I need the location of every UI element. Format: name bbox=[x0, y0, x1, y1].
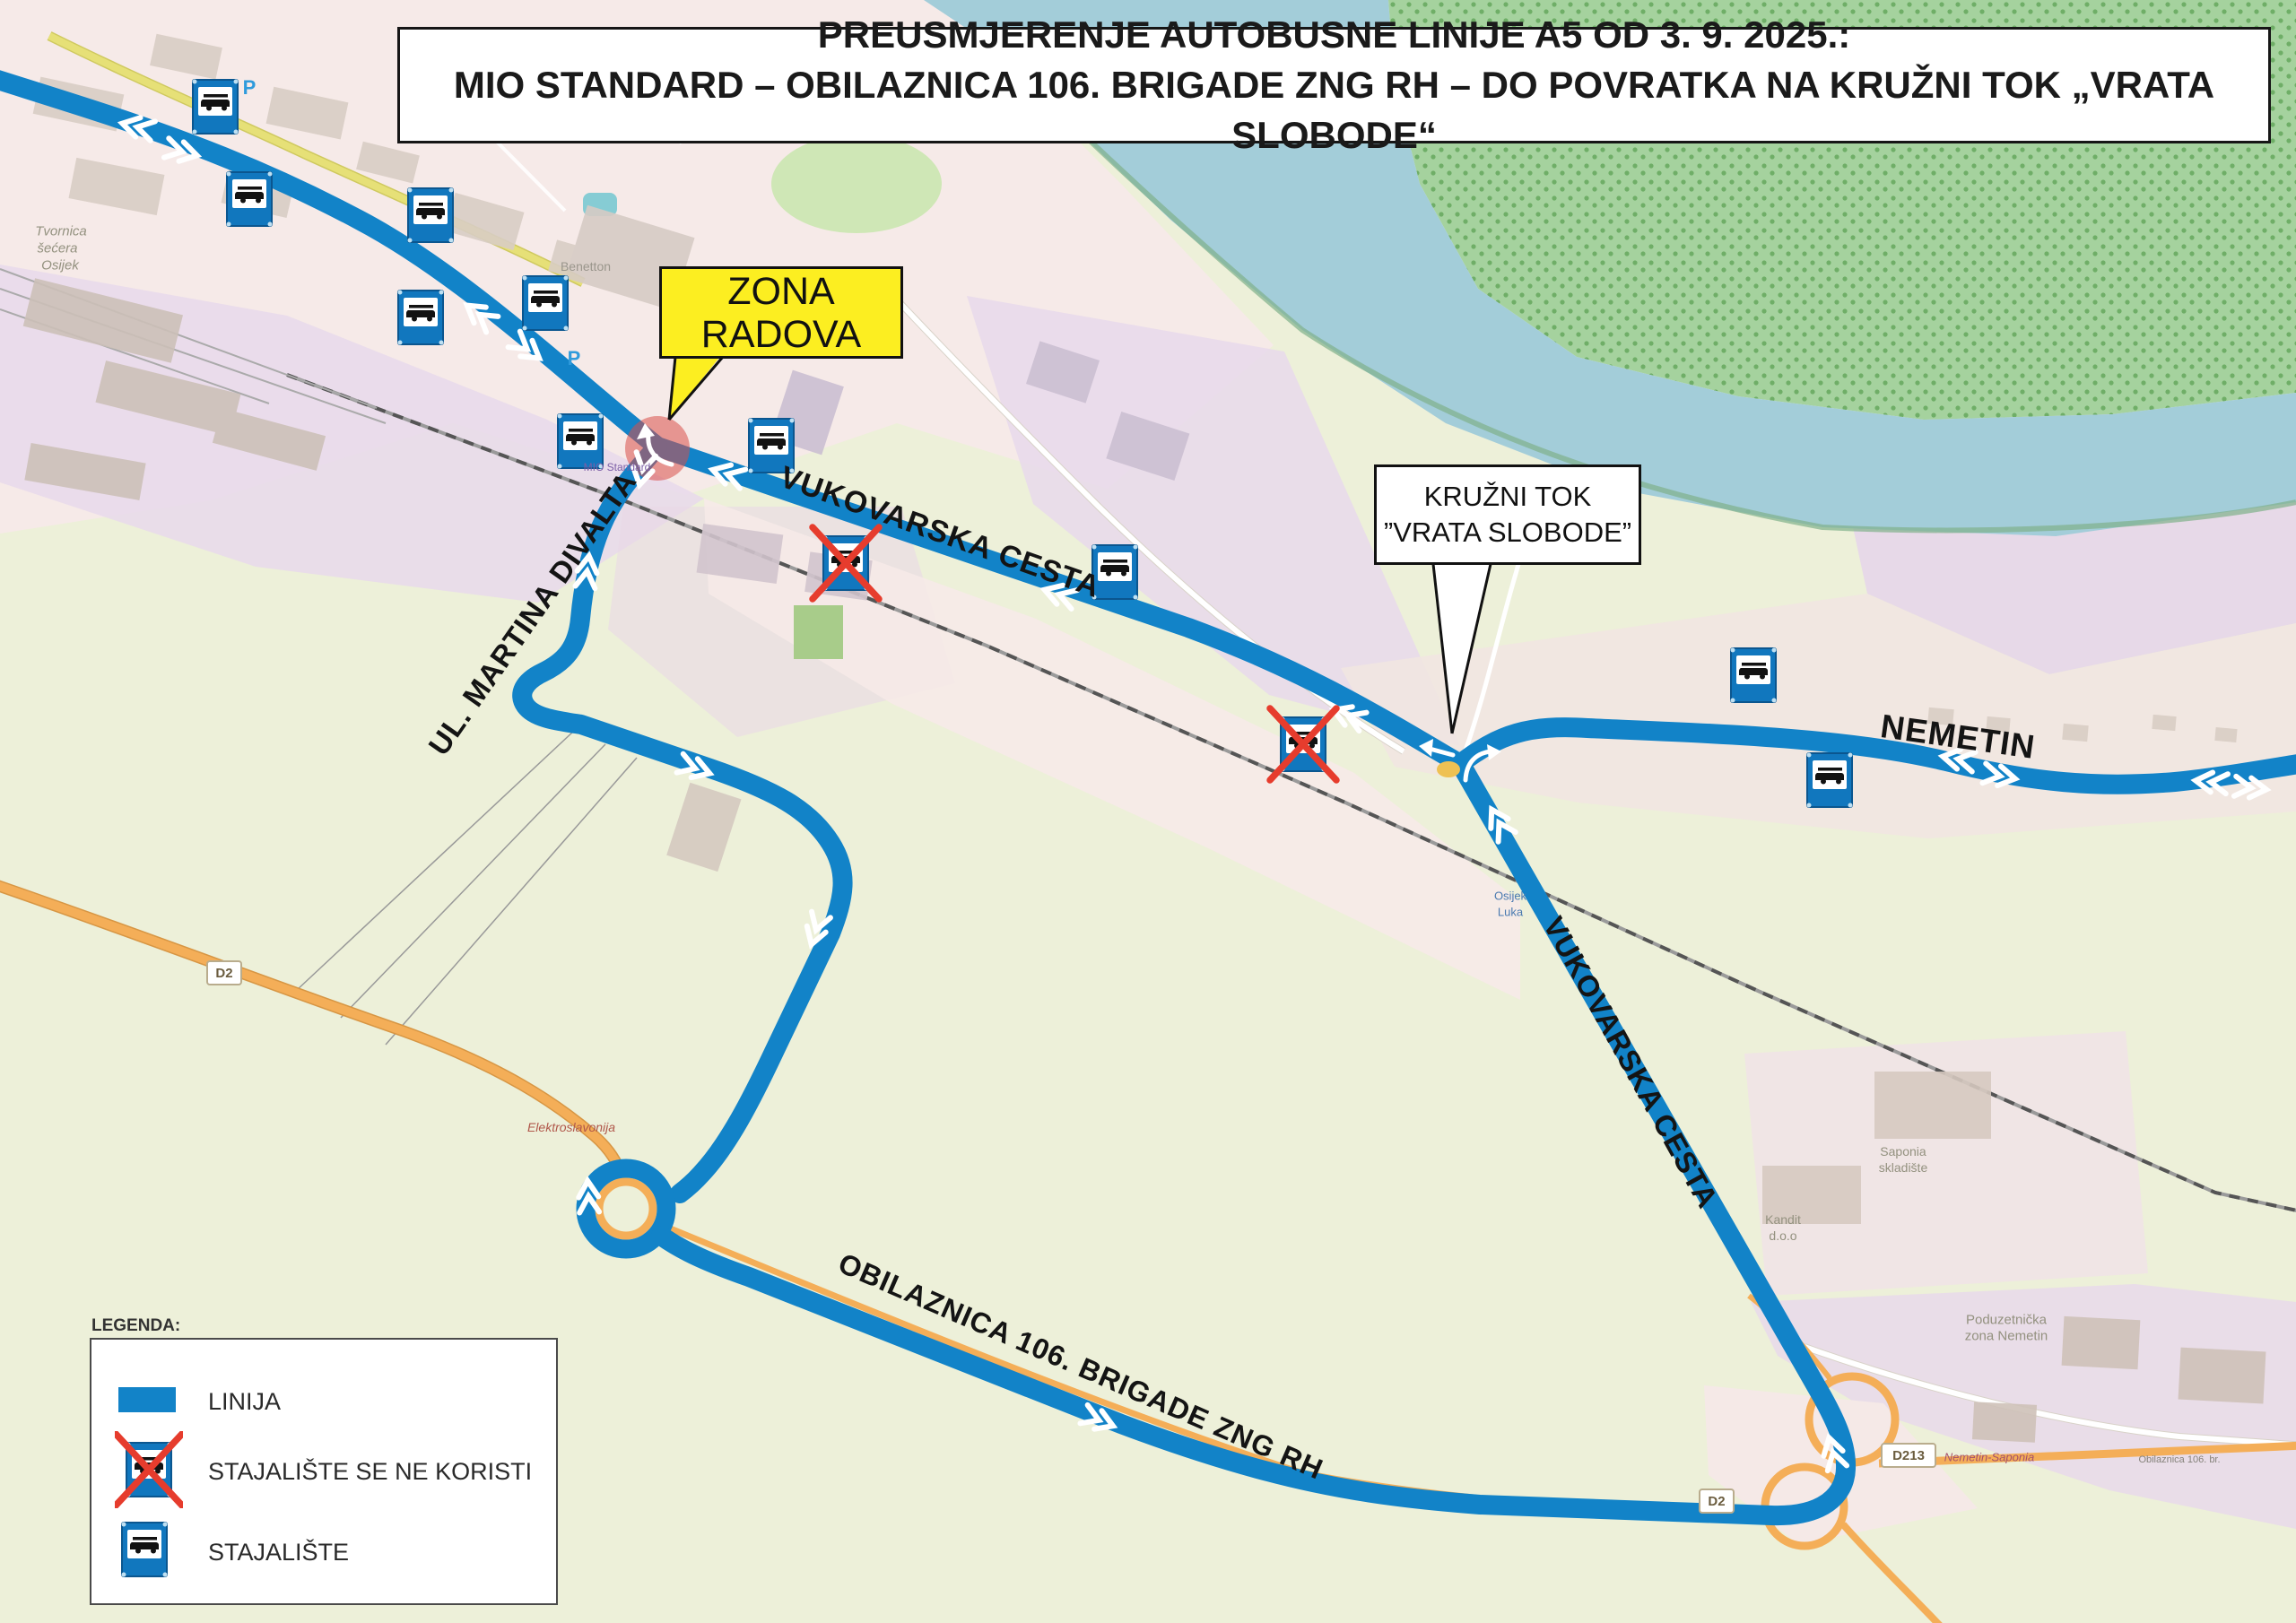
crossed-bus-stop-icon bbox=[115, 1431, 183, 1508]
bus-stop-icon bbox=[1807, 753, 1853, 808]
bus-stop-icon bbox=[1731, 648, 1777, 703]
legend-route-swatch bbox=[118, 1387, 176, 1412]
legend-label-line: LINIJA bbox=[208, 1388, 281, 1416]
work-zone-line-1: ZONA bbox=[727, 270, 834, 313]
roundabout-island bbox=[1437, 761, 1460, 777]
bus-stop-icon bbox=[227, 172, 273, 227]
diversion-map: TvornicašećeraOsijekBenettonLuka Tranzit… bbox=[0, 0, 2296, 1623]
roundabout-line-1: KRUŽNI TOK bbox=[1424, 479, 1592, 515]
crossed-bus-stop-icon bbox=[1270, 708, 1336, 780]
work-zone-callout: ZONA RADOVA bbox=[659, 266, 903, 359]
bus-stop-icon bbox=[749, 419, 795, 473]
title-banner: PREUSMJERENJE AUTOBUSNE LINIJE A5 OD 3. … bbox=[397, 27, 2271, 143]
legend: LINIJA STAJALIŠTE SE NE KORISTI STAJALIŠ… bbox=[90, 1338, 558, 1605]
bus-stop-icon bbox=[1092, 545, 1138, 600]
legend-heading: LEGENDA: bbox=[91, 1316, 180, 1336]
bus-stop-icon bbox=[121, 1522, 168, 1577]
roundabout-callout: KRUŽNI TOK ”VRATA SLOBODE” bbox=[1374, 464, 1641, 565]
title-line-1: PREUSMJERENJE AUTOBUSNE LINIJE A5 OD 3. … bbox=[818, 10, 1850, 60]
bus-stop-icon bbox=[408, 188, 454, 243]
bus-stop-icon bbox=[193, 80, 239, 135]
work-zone-line-2: RADOVA bbox=[701, 313, 861, 356]
bus-stop-icon bbox=[523, 276, 569, 331]
crossed-bus-stop-icon bbox=[813, 527, 879, 599]
legend-label-stop: STAJALIŠTE bbox=[208, 1539, 349, 1567]
legend-label-stop-not-used: STAJALIŠTE SE NE KORISTI bbox=[208, 1458, 532, 1486]
bus-stop-icon bbox=[558, 414, 604, 469]
title-line-2: MIO STANDARD – OBILAZNICA 106. BRIGADE Z… bbox=[400, 60, 2268, 161]
bus-stop-icon bbox=[398, 291, 444, 345]
roundabout-line-2: ”VRATA SLOBODE” bbox=[1384, 515, 1631, 551]
